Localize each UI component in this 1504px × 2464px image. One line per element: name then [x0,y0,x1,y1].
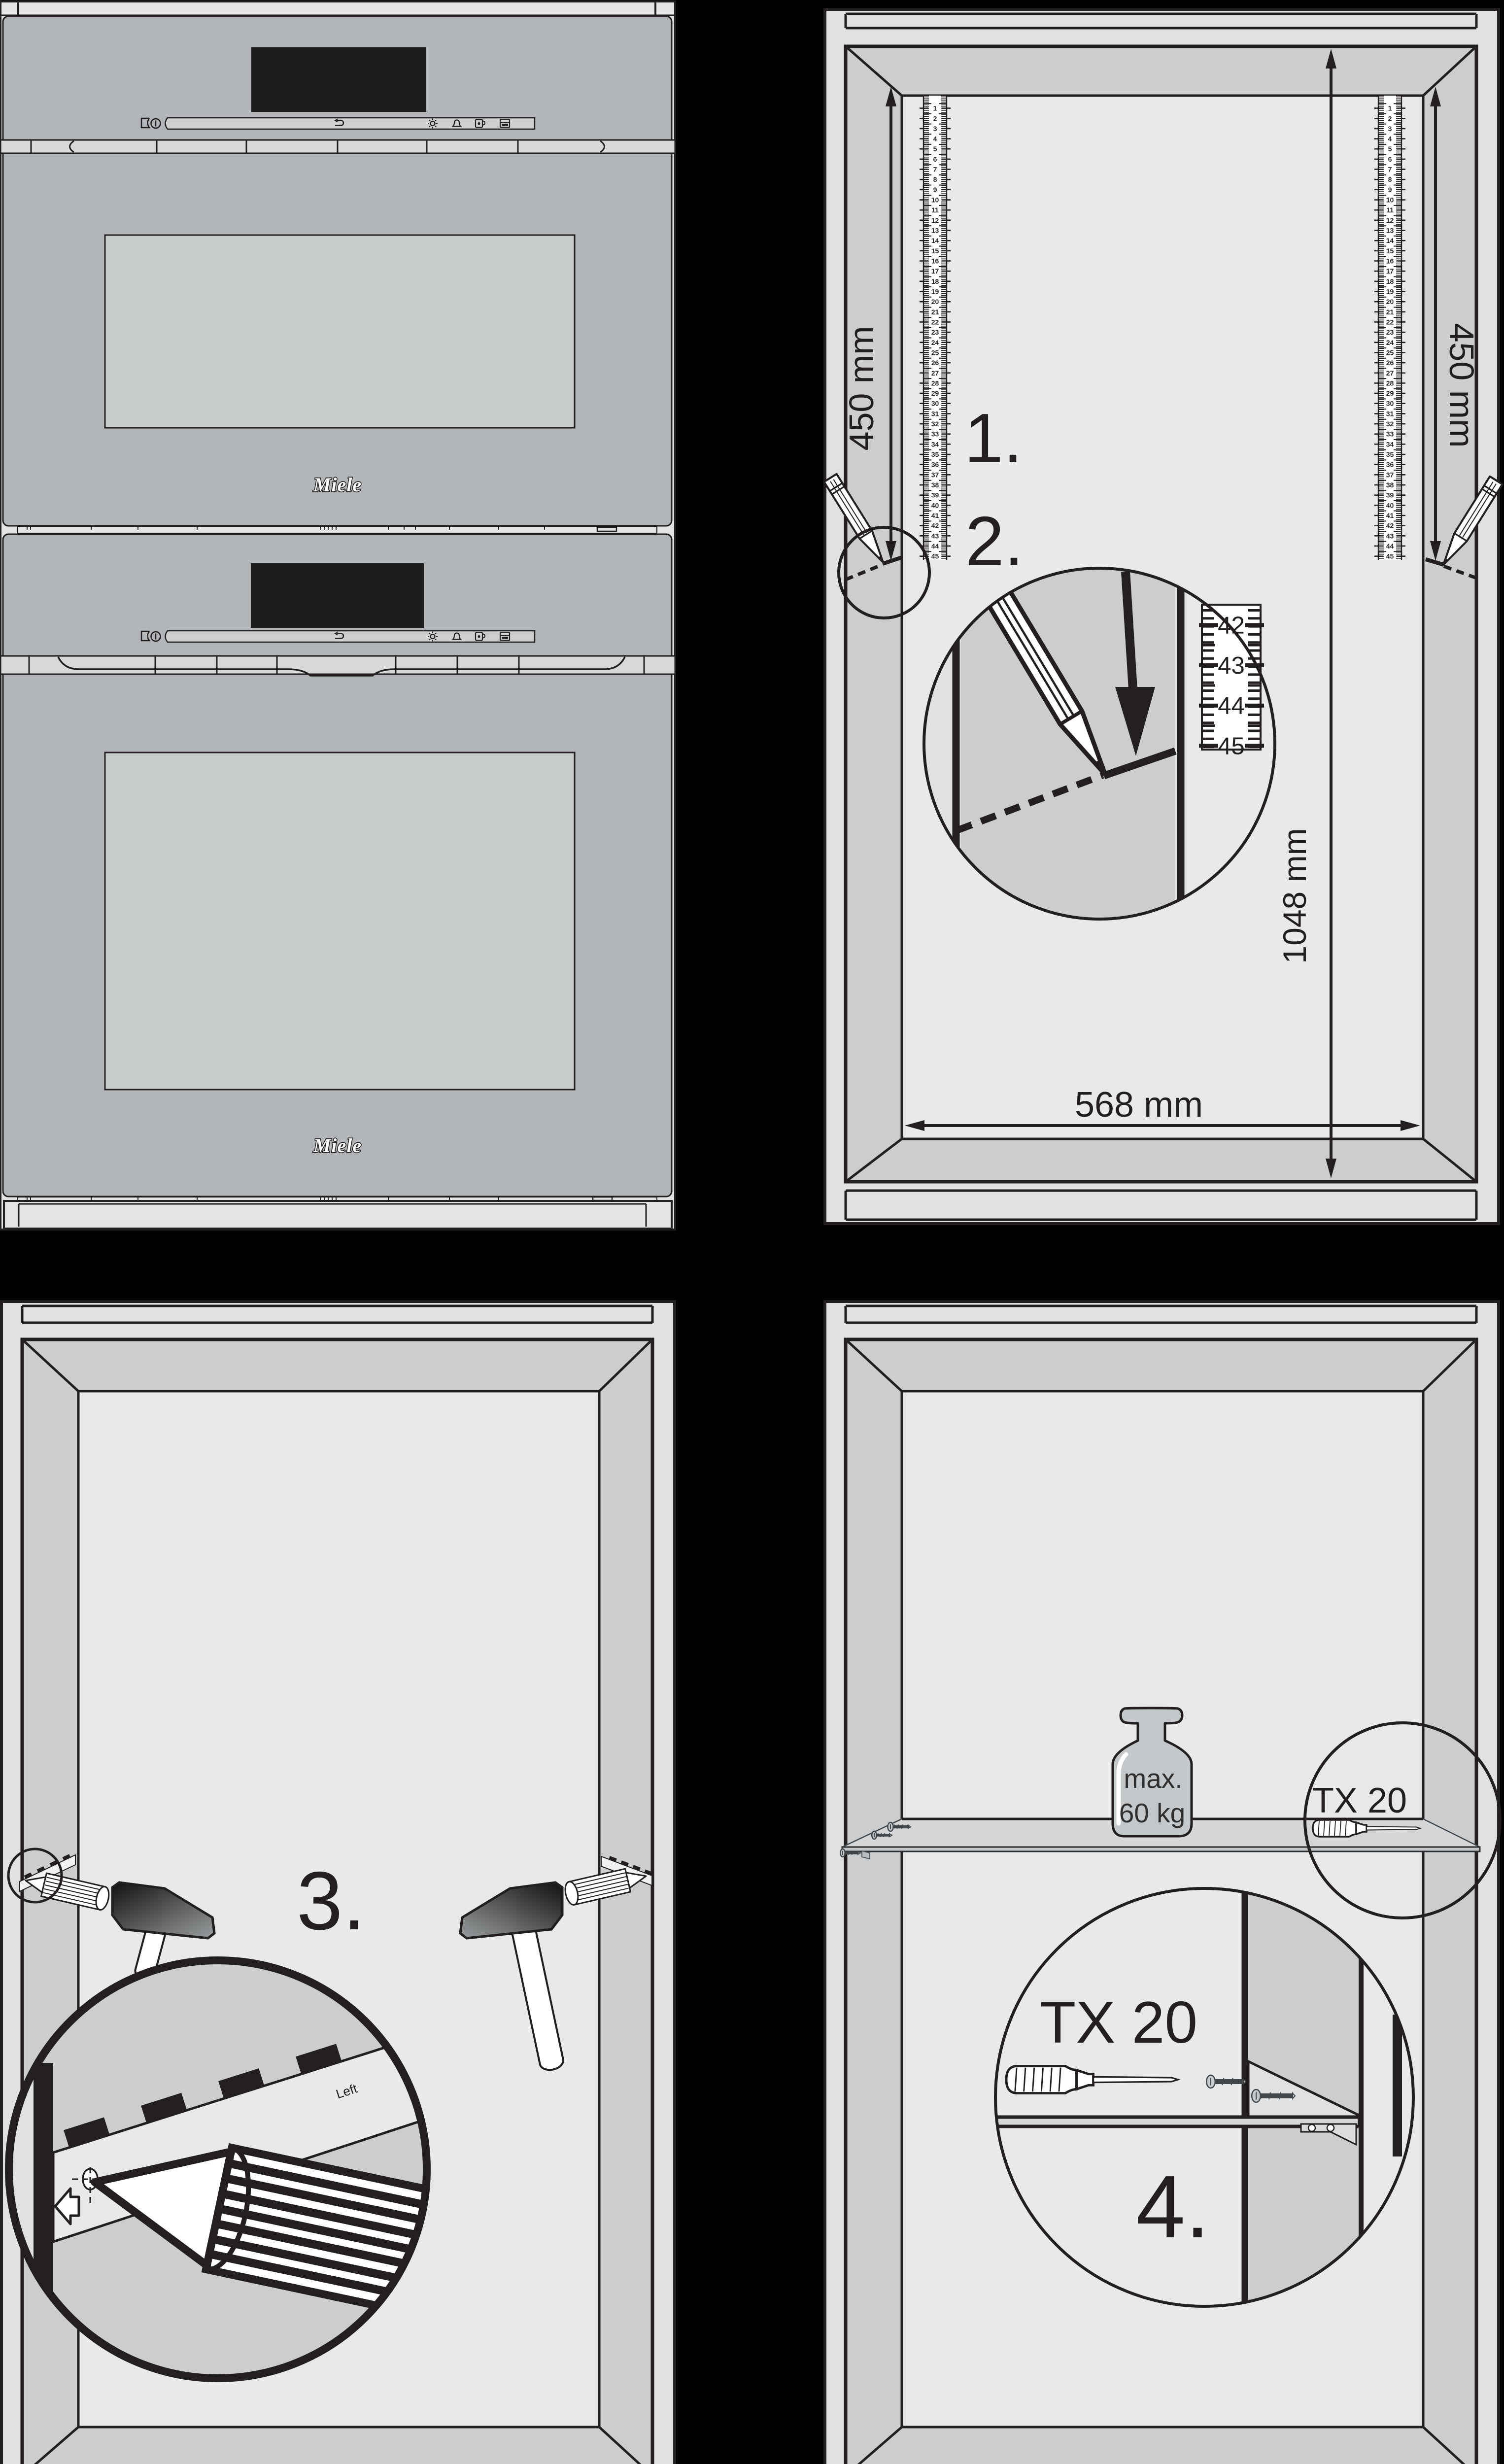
svg-text:33: 33 [931,430,939,438]
svg-text:38: 38 [931,481,939,489]
svg-text:8: 8 [1388,175,1392,183]
svg-text:34: 34 [1386,440,1394,448]
svg-text:20: 20 [931,298,939,306]
svg-text:14: 14 [1386,237,1394,244]
svg-text:42: 42 [931,522,939,530]
svg-text:32: 32 [1386,420,1394,428]
svg-text:7: 7 [1388,166,1392,173]
svg-text:28: 28 [931,379,939,387]
svg-text:Miele: Miele [313,474,362,496]
svg-text:23: 23 [931,328,939,336]
svg-text:6: 6 [933,155,937,163]
svg-text:5: 5 [933,145,937,153]
svg-text:43: 43 [1218,652,1245,679]
svg-text:45: 45 [1386,552,1394,560]
svg-text:2.: 2. [965,502,1024,581]
svg-text:21: 21 [931,308,939,316]
svg-text:20: 20 [1386,298,1394,306]
svg-text:568 mm: 568 mm [1075,1085,1203,1125]
svg-text:31: 31 [1386,410,1394,417]
svg-text:450 mm: 450 mm [842,326,881,451]
svg-text:17: 17 [931,267,939,275]
svg-text:2: 2 [933,114,937,122]
svg-text:21: 21 [1386,308,1394,316]
svg-text:39: 39 [931,491,939,499]
svg-text:max.: max. [1124,1763,1182,1794]
svg-text:22: 22 [1386,318,1394,326]
svg-text:40: 40 [1386,501,1394,509]
svg-text:29: 29 [1386,389,1394,397]
svg-text:1: 1 [1388,104,1392,112]
svg-text:33: 33 [1386,430,1394,438]
svg-text:25: 25 [931,348,939,356]
svg-text:44: 44 [931,542,939,550]
svg-text:37: 37 [931,471,939,479]
svg-text:15: 15 [1386,247,1394,255]
svg-text:27: 27 [1386,369,1394,377]
svg-text:44: 44 [1386,542,1394,550]
svg-text:40: 40 [931,501,939,509]
svg-text:1.: 1. [964,399,1023,478]
svg-text:10: 10 [1386,196,1394,204]
svg-text:34: 34 [931,440,939,448]
svg-text:45: 45 [1218,733,1245,759]
svg-text:28: 28 [1386,379,1394,387]
svg-text:41: 41 [931,512,939,519]
svg-text:TX 20: TX 20 [1312,1781,1407,1820]
svg-text:TX 20: TX 20 [1040,1989,1197,2055]
svg-text:26: 26 [931,359,939,367]
svg-text:450 mm: 450 mm [1442,323,1481,448]
svg-text:45: 45 [931,552,939,560]
svg-text:22: 22 [931,318,939,326]
svg-text:18: 18 [1386,277,1394,285]
svg-text:6: 6 [1388,155,1392,163]
svg-text:2: 2 [1388,114,1392,122]
svg-text:18: 18 [931,277,939,285]
svg-text:17: 17 [1386,267,1394,275]
svg-text:29: 29 [931,389,939,397]
svg-text:3.: 3. [297,1854,366,1947]
svg-text:42: 42 [1386,522,1394,530]
svg-text:12: 12 [1386,216,1394,224]
svg-text:14: 14 [931,237,939,244]
svg-text:Miele: Miele [313,1134,362,1157]
svg-text:9: 9 [933,186,937,194]
svg-text:1048 mm: 1048 mm [1276,828,1313,963]
svg-text:24: 24 [931,339,939,346]
svg-text:12: 12 [931,216,939,224]
svg-text:3: 3 [1388,125,1392,133]
svg-text:11: 11 [1386,206,1394,214]
svg-text:37: 37 [1386,471,1394,479]
svg-text:30: 30 [931,400,939,408]
svg-text:10: 10 [931,196,939,204]
svg-text:9: 9 [1388,186,1392,194]
svg-text:24: 24 [1386,339,1394,346]
svg-text:1: 1 [933,104,937,112]
svg-text:31: 31 [931,410,939,417]
svg-text:41: 41 [1386,512,1394,519]
svg-text:15: 15 [931,247,939,255]
svg-text:32: 32 [931,420,939,428]
svg-text:23: 23 [1386,328,1394,336]
svg-text:27: 27 [931,369,939,377]
svg-text:8: 8 [933,175,937,183]
svg-text:25: 25 [1386,348,1394,356]
svg-text:36: 36 [1386,461,1394,469]
svg-text:60 kg: 60 kg [1119,1798,1186,1828]
svg-text:16: 16 [931,257,939,265]
svg-text:26: 26 [1386,359,1394,367]
svg-text:11: 11 [931,206,939,214]
svg-text:19: 19 [931,287,939,295]
svg-text:5: 5 [1388,145,1392,153]
svg-text:36: 36 [931,461,939,469]
svg-text:35: 35 [1386,450,1394,458]
svg-text:16: 16 [1386,257,1394,265]
svg-text:39: 39 [1386,491,1394,499]
svg-text:38: 38 [1386,481,1394,489]
svg-text:4.: 4. [1136,2157,1210,2257]
svg-text:44: 44 [1218,693,1245,719]
svg-text:30: 30 [1386,400,1394,408]
svg-text:19: 19 [1386,287,1394,295]
svg-text:43: 43 [931,532,939,540]
svg-text:43: 43 [1386,532,1394,540]
svg-text:13: 13 [931,227,939,235]
svg-text:13: 13 [1386,227,1394,235]
svg-text:4: 4 [933,135,937,143]
svg-text:7: 7 [933,166,937,173]
svg-text:35: 35 [931,450,939,458]
svg-text:3: 3 [933,125,937,133]
svg-text:4: 4 [1388,135,1392,143]
